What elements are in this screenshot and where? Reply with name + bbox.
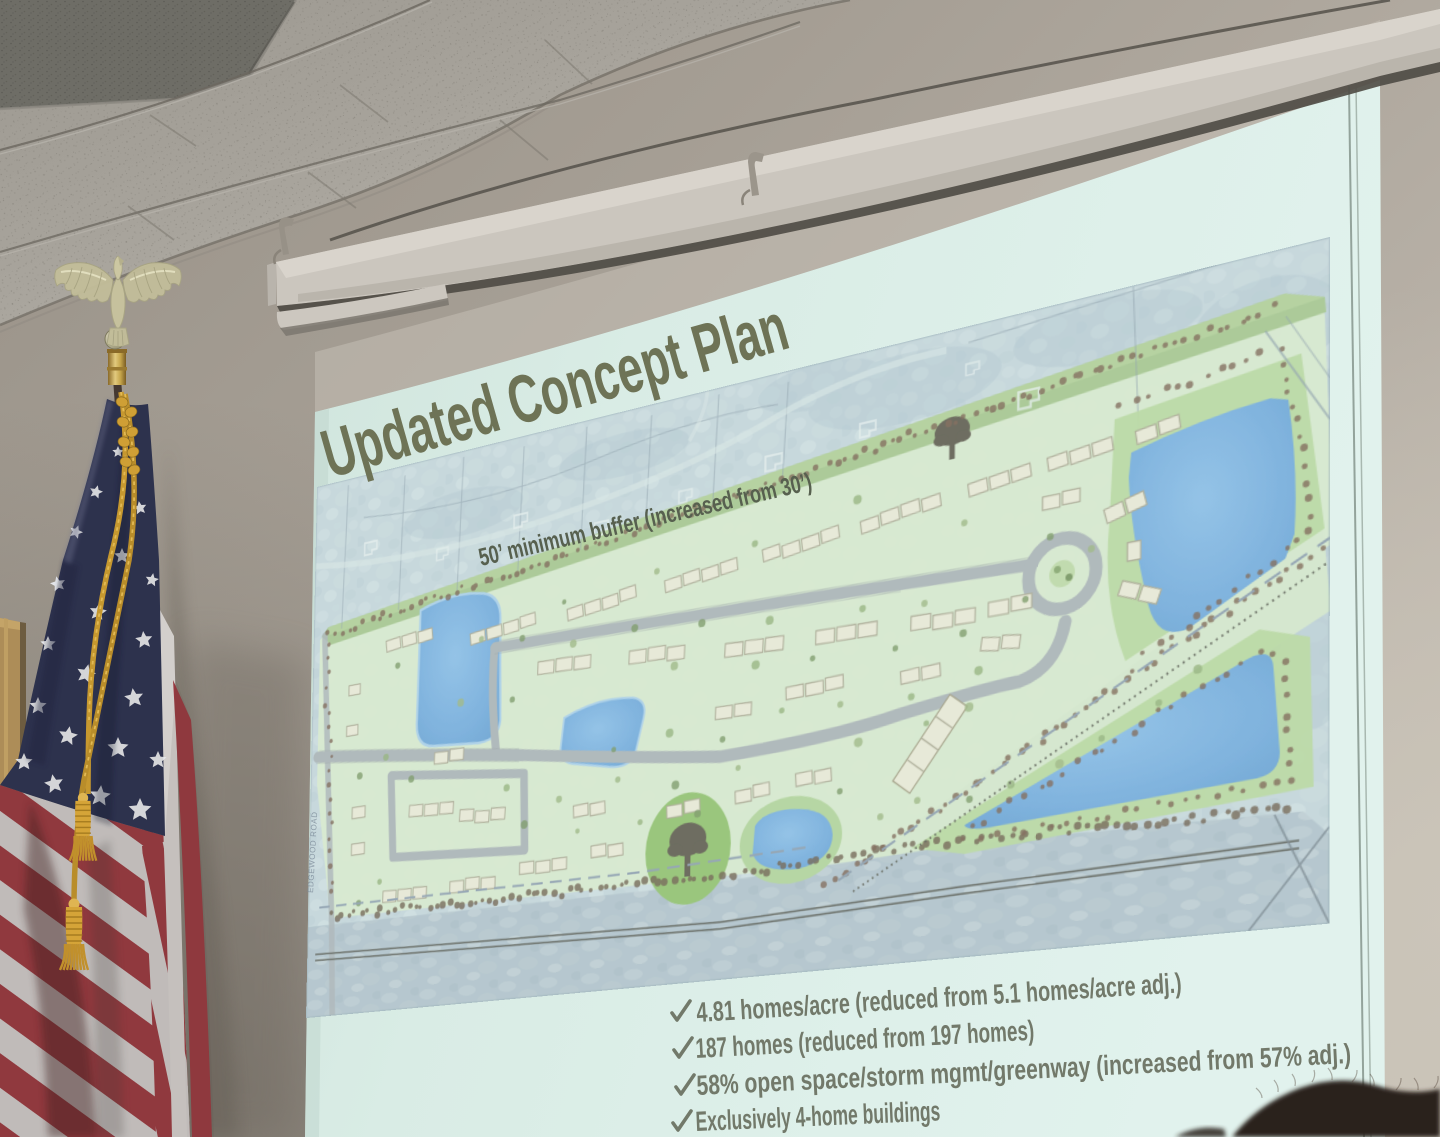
- svg-text:EDGEWOOD ROAD: EDGEWOOD ROAD: [306, 811, 319, 893]
- svg-text:Exclusively 4-home buildings: Exclusively 4-home buildings: [695, 1095, 941, 1137]
- svg-text:Updated Concept Plan: Updated Concept Plan: [314, 289, 797, 492]
- svg-text:50’ minimum buffer (increased: 50’ minimum buffer (increased from 30’): [476, 467, 815, 572]
